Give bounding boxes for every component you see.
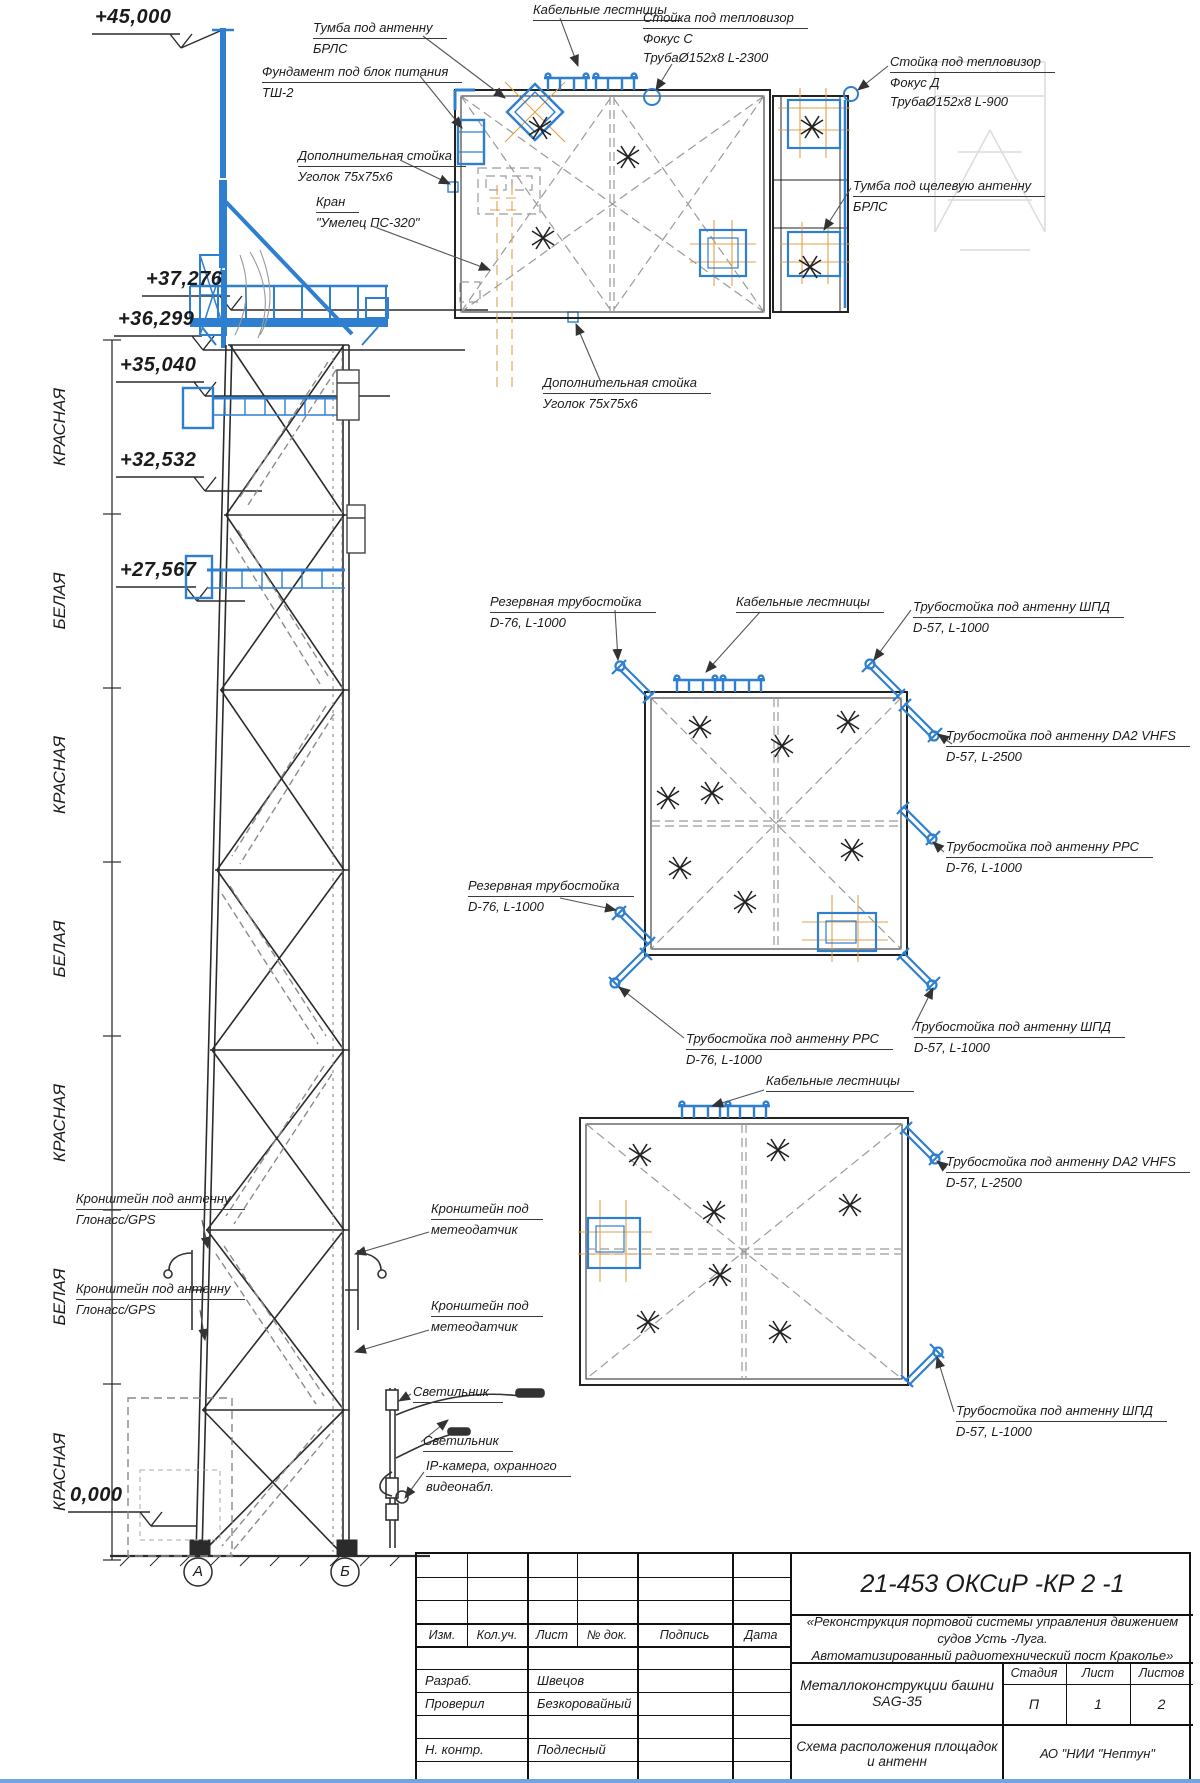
band-label-5: КРАСНАЯ: [50, 1048, 70, 1198]
sheets-total: 2: [1130, 1684, 1193, 1724]
title-block: 21-453 ОКСиР -КР 2 -1 «Реконструкция пор…: [415, 1552, 1191, 1781]
sheet-title: Схема расположения площадок и антенн: [792, 1724, 1002, 1783]
tower-stairs: [216, 350, 342, 1554]
callout-reserve-post-2: Резервная трубостойка D-76, L-1000: [468, 876, 634, 916]
band-scale: [103, 340, 121, 1560]
elevation-36299: +36,299: [118, 308, 194, 331]
callout-extra-post-bottom: Дополнительная стойка Уголок 75х75х6: [543, 373, 711, 413]
sheet-label: Лист: [1066, 1662, 1130, 1684]
tower-platforms: [183, 388, 345, 598]
col-podpis: Подпись: [637, 1623, 732, 1646]
tower-lattice: [196, 345, 349, 1556]
elevation-45000: +45,000: [95, 6, 171, 29]
callout-cable-ladders-bottom: Кабельные лестницы: [766, 1071, 914, 1092]
band-label-1: КРАСНАЯ: [50, 352, 70, 502]
elevation-37276: +37,276: [146, 268, 222, 291]
band-label-3: КРАСНАЯ: [50, 700, 70, 850]
band-label-7: КРАСНАЯ: [50, 1397, 70, 1547]
callout-meteo-bracket-2: Кронштейн под метеодатчик: [431, 1296, 543, 1336]
axis-b: Б: [331, 1558, 359, 1586]
callout-ip-camera: IP-камера, охранного видеонабл.: [426, 1456, 571, 1496]
sheet-number: 1: [1066, 1684, 1130, 1724]
callout-lamp-2: Светильник: [423, 1431, 513, 1452]
col-data: Дата: [732, 1623, 790, 1646]
band-label-4: БЕЛАЯ: [50, 874, 70, 1024]
col-koluch: Кол.уч.: [467, 1623, 527, 1646]
plan-top: [455, 74, 858, 392]
callout-da2-bottom: Трубостойка под антенну DA2 VHFS D-57, L…: [946, 1152, 1190, 1192]
col-ndok: № док.: [577, 1623, 637, 1646]
axis-a: А: [184, 1558, 212, 1586]
name-nkontr: Подлесный: [529, 1738, 637, 1761]
doc-number: 21-453 ОКСиР -КР 2 -1: [792, 1554, 1193, 1614]
band-label-2: БЕЛАЯ: [50, 526, 70, 676]
callout-shpd-top: Трубостойка под антенну ШПД D-57, L-1000: [913, 597, 1124, 637]
callout-meteo-bracket-1: Кронштейн под метеодатчик: [431, 1199, 543, 1239]
band-label-6: БЕЛАЯ: [50, 1222, 70, 1372]
callout-tumba-antenna: Тумба под антенну БРЛС: [313, 18, 447, 58]
elevation-27567: +27,567: [120, 559, 196, 582]
organization: АО "НИИ "Нептун": [1002, 1724, 1193, 1783]
callout-crane: Кран "Умелец ПС-320": [316, 192, 420, 232]
role-proveril: Проверил: [417, 1692, 527, 1715]
callout-cable-ladders-mid: Кабельные лестницы: [736, 592, 884, 613]
name-proveril: Безкоровайный: [529, 1692, 637, 1715]
callout-thermal-focus-c: Стойка под тепловизор Фокус С ТрубаØ152x…: [643, 8, 808, 67]
callout-rrs-bottom: Трубостойка под антенну РРС D-76, L-1000: [686, 1029, 893, 1069]
callout-foundation: Фундамент под блок питания ТШ-2: [262, 62, 462, 102]
callout-shpd-bottom-mid: Трубостойка под антенну ШПД D-57, L-1000: [914, 1017, 1125, 1057]
plan-middle: [609, 658, 942, 991]
callout-gps-bracket-1: Кронштейн под антенну Глонасс/GPS: [76, 1189, 245, 1229]
project-name: «Реконструкция портовой системы управлен…: [792, 1614, 1193, 1662]
callout-reserve-post-1: Резервная трубостойка D-76, L-1000: [490, 592, 656, 632]
role-nkontr: Н. контр.: [417, 1738, 527, 1761]
col-list: Лист: [527, 1623, 577, 1646]
callout-extra-post-top: Дополнительная стойка Уголок 75х75х6: [298, 146, 466, 186]
callout-rrs-right: Трубостойка под антенну РРС D-76, L-1000: [946, 837, 1153, 877]
sheet-bottom-edge: [0, 1779, 1200, 1783]
elevation-0000: 0,000: [70, 1484, 123, 1507]
elevation-35040: +35,040: [120, 354, 196, 377]
callout-shpd-bottom: Трубостойка под антенну ШПД D-57, L-1000: [956, 1401, 1167, 1441]
object-name: Металлоконструкции башни SAG-35: [792, 1662, 1002, 1724]
elevation-32532: +32,532: [120, 449, 196, 472]
plan-bottom: [578, 1102, 944, 1387]
stage-label: Стадия: [1002, 1662, 1066, 1684]
callout-da2-mid: Трубостойка под антенну DA2 VHFS D-57, L…: [946, 726, 1190, 766]
col-izm: Изм.: [417, 1623, 467, 1646]
callout-tumba-slot: Тумба под щелевую антенну БРЛС: [853, 176, 1045, 216]
name-razrab: Швецов: [529, 1669, 637, 1692]
stage-value: П: [1002, 1684, 1066, 1724]
drawing-sheet: +45,000 +37,276 +36,299 +35,040 +32,532 …: [0, 0, 1200, 1783]
role-razrab: Разраб.: [417, 1669, 527, 1692]
sheets-label: Листов: [1130, 1662, 1193, 1684]
callout-thermal-focus-d: Стойка под тепловизор Фокус Д ТрубаØ152x…: [890, 52, 1055, 111]
callout-lamp-1: Светильник: [413, 1382, 503, 1403]
callout-gps-bracket-2: Кронштейн под антенну Глонасс/GPS: [76, 1279, 245, 1319]
